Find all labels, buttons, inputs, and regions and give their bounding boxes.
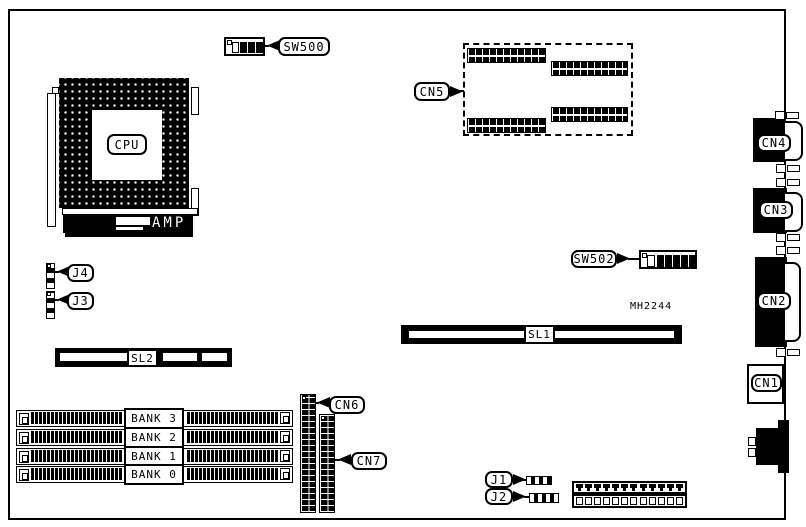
cn5-label: CN5 <box>414 82 450 101</box>
amp-label: AMP <box>152 215 186 231</box>
sl2-slot-contact-2 <box>163 353 197 361</box>
power-socket-hole <box>658 497 665 505</box>
j1-label: J1 <box>485 471 513 488</box>
edge-tab <box>776 233 786 242</box>
edge-tab <box>787 179 800 186</box>
amp-bottom-strip <box>65 233 193 237</box>
sl2-label-text: SL2 <box>131 352 154 365</box>
simm-latch <box>280 468 290 480</box>
edge-tab <box>786 112 799 119</box>
power-pin <box>676 484 683 488</box>
cn6-pin-header <box>300 394 316 513</box>
sl2-label: SL2 <box>127 349 158 367</box>
edge-tab <box>775 111 785 120</box>
sw502-dip-switch <box>639 250 697 269</box>
sw502-callout-line <box>628 258 640 260</box>
cpu-socket-notch <box>52 87 59 94</box>
power-pin <box>658 484 665 488</box>
cn1-label-text: CN1 <box>754 376 779 390</box>
sw500-label-text: SW500 <box>283 40 324 54</box>
sw500-switch-3 <box>248 42 255 53</box>
bank0-label-text: BANK 0 <box>131 468 177 481</box>
j2-label: J2 <box>485 488 513 505</box>
cn5-callout-line <box>460 90 464 92</box>
simm-latch <box>19 432 29 444</box>
power-pin <box>621 484 628 488</box>
cn7-pin-header <box>319 414 335 513</box>
cpu-socket-tab-top <box>191 87 199 115</box>
edge-tab <box>787 349 800 356</box>
simm-contacts <box>186 412 278 424</box>
cn2-label: CN2 <box>757 292 791 310</box>
bank2-label: BANK 2 <box>124 427 184 448</box>
simm-latch <box>280 412 290 424</box>
sw502-switch-5 <box>681 255 688 267</box>
power-socket-hole <box>676 497 683 505</box>
sw502-switch-3 <box>665 255 672 267</box>
sl2-slot-contact-1 <box>60 353 127 361</box>
motherboard-diagram: CPU AMP SW500 CN5 SW502 MH2244 <box>0 0 806 527</box>
keyboard-din-notch <box>748 448 756 457</box>
j1-label-text: J1 <box>491 473 507 487</box>
cn7-pin1-dot <box>321 416 325 420</box>
keyboard-din-notch <box>748 437 756 446</box>
power-socket-hole <box>621 497 628 505</box>
edge-tab <box>787 234 800 241</box>
cpu-socket-lever <box>47 93 56 227</box>
amp-chip-lower <box>116 227 143 230</box>
edge-tab <box>776 178 786 187</box>
simm-contacts <box>186 450 278 462</box>
cpu-label-text: CPU <box>115 138 140 152</box>
amp-top-strip <box>62 208 198 215</box>
sl2-slot-contact-3 <box>202 353 227 361</box>
bank1-label-text: BANK 1 <box>131 450 177 463</box>
j2-callout-line <box>524 496 530 498</box>
bank2-label-text: BANK 2 <box>131 431 177 444</box>
sw500-label: SW500 <box>278 37 330 56</box>
sw502-label: SW502 <box>571 250 617 268</box>
board-part-number: MH2244 <box>630 301 672 312</box>
power-socket-hole <box>649 497 656 505</box>
power-pin <box>594 484 601 488</box>
j2-jumper <box>529 493 559 503</box>
cn6-label: CN6 <box>329 396 365 414</box>
bank0-label: BANK 0 <box>124 464 184 485</box>
power-socket-hole <box>630 497 637 505</box>
edge-tab <box>776 246 786 255</box>
cn5-pin-strip-bottom-left <box>467 118 546 133</box>
simm-contacts <box>30 431 122 443</box>
cn7-label-text: CN7 <box>357 454 382 468</box>
power-pin <box>630 484 637 488</box>
j3-label: J3 <box>67 292 94 310</box>
simm-contacts <box>30 468 122 480</box>
sw500-dip-switch <box>224 37 265 56</box>
edge-tab <box>787 247 800 254</box>
simm-latch <box>19 451 29 463</box>
cn5-pin-strip-top-right <box>551 61 628 76</box>
j3-label-text: J3 <box>72 294 88 308</box>
power-pin-row <box>574 483 685 488</box>
sw500-switch-4 <box>256 42 263 53</box>
cn4-label: CN4 <box>757 134 791 152</box>
simm-latch <box>19 413 29 425</box>
cn3-label: CN3 <box>759 201 793 219</box>
power-pin <box>640 484 647 488</box>
bank3-label-text: BANK 3 <box>131 412 177 425</box>
cn1-label: CN1 <box>751 374 782 392</box>
edge-tab <box>776 164 786 173</box>
amp-chip <box>116 217 150 225</box>
simm-contacts <box>186 468 278 480</box>
power-pin <box>585 484 592 488</box>
j4-label-text: J4 <box>72 266 88 280</box>
keyboard-din-connector-edge <box>778 420 789 473</box>
power-socket-hole <box>594 497 601 505</box>
simm-latch <box>280 450 290 462</box>
sl1-label-text: SL1 <box>528 328 551 341</box>
simm-contacts <box>30 412 122 424</box>
power-pin <box>649 484 656 488</box>
power-socket-hole <box>667 497 674 505</box>
cn7-label: CN7 <box>351 452 387 470</box>
j4-label: J4 <box>67 264 94 282</box>
cn5-pin-strip-top-left <box>467 48 546 63</box>
sw500-switch-2 <box>240 42 247 53</box>
power-pin <box>612 484 619 488</box>
simm-latch <box>280 431 290 443</box>
power-pin <box>603 484 610 488</box>
j2-label-text: J2 <box>491 490 507 504</box>
sl1-label: SL1 <box>524 325 555 344</box>
sw502-switch-6 <box>689 255 696 267</box>
cn2-label-text: CN2 <box>762 294 787 308</box>
sw502-switch-4 <box>673 255 680 267</box>
sw502-label-text: SW502 <box>573 252 614 266</box>
j3-pin1-dot <box>47 292 51 296</box>
cn6-label-text: CN6 <box>335 398 360 412</box>
cn5-pin-strip-bottom-right <box>551 107 628 122</box>
edge-tab <box>776 348 786 357</box>
power-pin <box>667 484 674 488</box>
simm-latch <box>19 469 29 481</box>
cpu-label: CPU <box>107 134 147 155</box>
simm-contacts <box>186 431 278 443</box>
sw502-switch-2 <box>657 255 664 267</box>
power-socket-hole <box>640 497 647 505</box>
j1-callout-line <box>523 479 527 481</box>
power-socket-hole <box>612 497 619 505</box>
sw500-switch-1 <box>232 42 239 53</box>
simm-contacts <box>30 450 122 462</box>
sw502-switch-1 <box>647 255 655 267</box>
power-connector <box>572 481 687 508</box>
power-socket-hole <box>603 497 610 505</box>
bank3-label: BANK 3 <box>124 408 184 429</box>
cn4-label-text: CN4 <box>762 136 787 150</box>
power-socket-row <box>574 496 685 505</box>
j1-jumper <box>526 476 552 485</box>
cn3-label-text: CN3 <box>764 203 789 217</box>
power-socket-hole <box>585 497 592 505</box>
power-socket-hole <box>576 497 583 505</box>
edge-tab <box>787 165 800 172</box>
j4-pin1-dot <box>47 264 51 268</box>
power-pin <box>576 484 583 488</box>
cn5-label-text: CN5 <box>420 85 445 99</box>
cn6-pin1-dot <box>302 396 306 400</box>
